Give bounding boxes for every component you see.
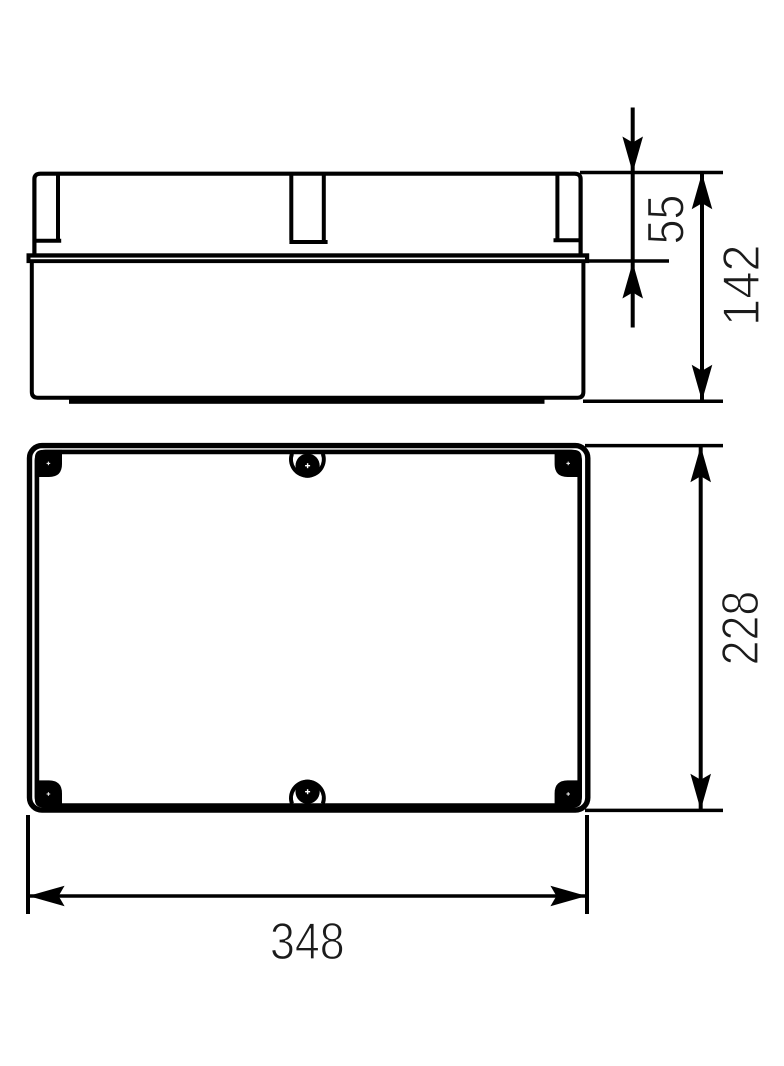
svg-text:142: 142 [712, 244, 771, 326]
svg-text:228: 228 [712, 591, 770, 666]
svg-text:348: 348 [270, 913, 345, 971]
svg-text:55: 55 [637, 195, 695, 245]
